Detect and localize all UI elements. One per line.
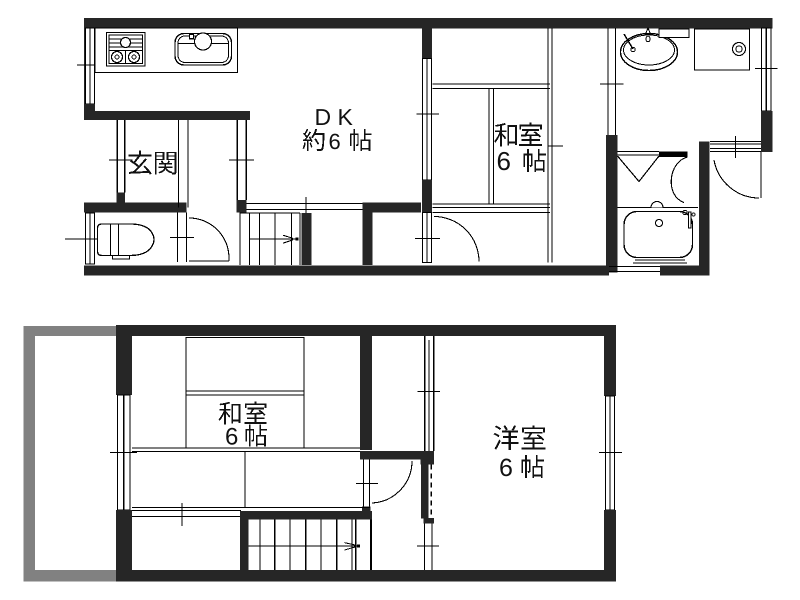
svg-text:6: 6 — [329, 129, 341, 154]
svg-text:6: 6 — [225, 424, 238, 451]
svg-text:6: 6 — [499, 454, 513, 482]
svg-text:D: D — [315, 104, 332, 130]
svg-text:6: 6 — [497, 146, 511, 176]
svg-text:K: K — [338, 104, 354, 130]
